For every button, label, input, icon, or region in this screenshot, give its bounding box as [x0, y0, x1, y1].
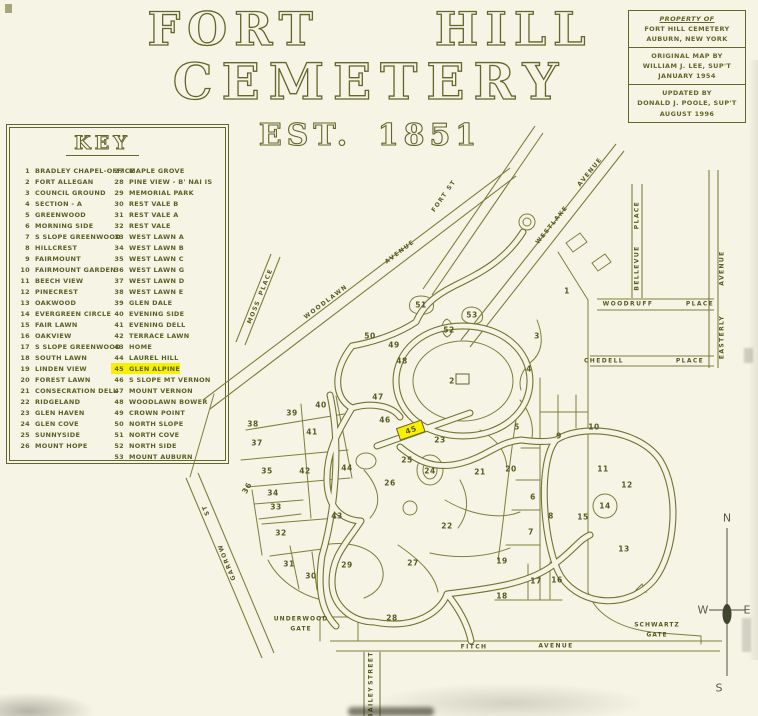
cemetery-map-page: FORT HILL CEMETERY EST. 1851 PROPERTY OF… — [0, 0, 758, 716]
compass-rose — [709, 528, 745, 676]
section-boundary-lines — [190, 214, 701, 644]
cemetery-map-drawing — [0, 0, 758, 716]
fort-allegan-marker — [456, 374, 469, 384]
drive-fill — [320, 232, 673, 641]
